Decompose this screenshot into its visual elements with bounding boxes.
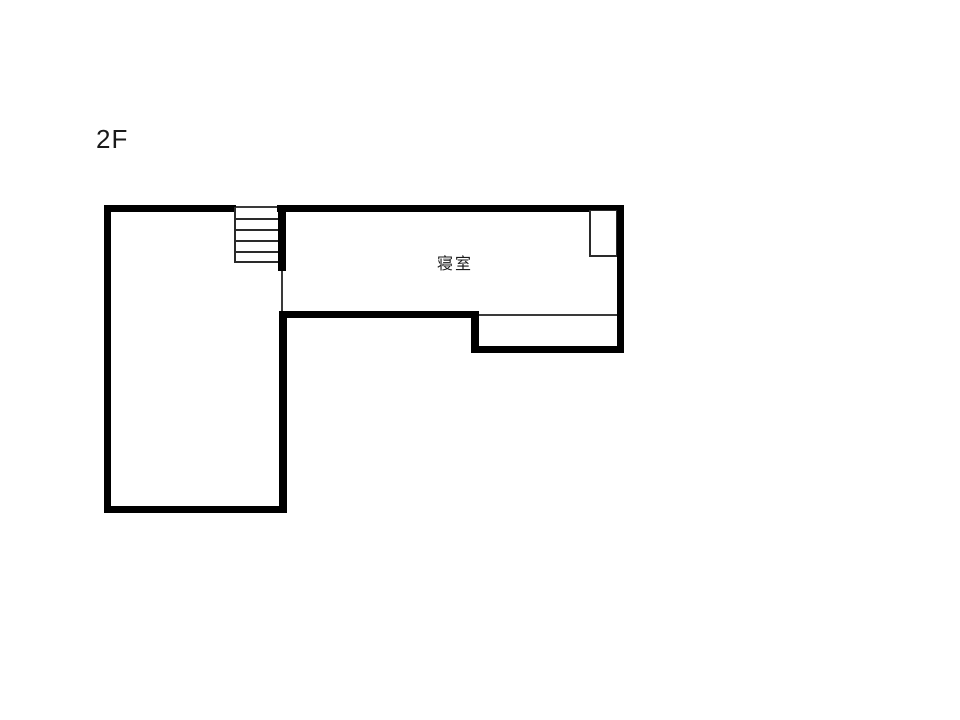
stair-tread-line	[236, 229, 278, 231]
lower-right-area-top-line	[479, 314, 619, 316]
wall-top-main	[277, 205, 624, 212]
room-label-bedroom: 寝室	[360, 250, 550, 274]
floorplan-canvas: 2F 寝室	[0, 0, 960, 720]
stair-tread-line	[236, 251, 278, 253]
wall-left-room-right	[279, 311, 287, 513]
door-opening-line	[281, 271, 283, 313]
wall-bottom-left-room	[104, 506, 287, 513]
stair-tread-line	[236, 240, 278, 242]
closet-box	[589, 210, 617, 257]
wall-bedroom-south	[279, 311, 479, 318]
stair-tread-line	[236, 218, 278, 220]
wall-top-left-segment	[104, 205, 236, 212]
wall-left	[104, 205, 111, 513]
staircase	[234, 207, 278, 263]
wall-right	[617, 205, 624, 353]
floor-label: 2F	[96, 124, 128, 155]
wall-stair-right	[278, 205, 286, 271]
wall-bottom-right	[471, 346, 624, 353]
